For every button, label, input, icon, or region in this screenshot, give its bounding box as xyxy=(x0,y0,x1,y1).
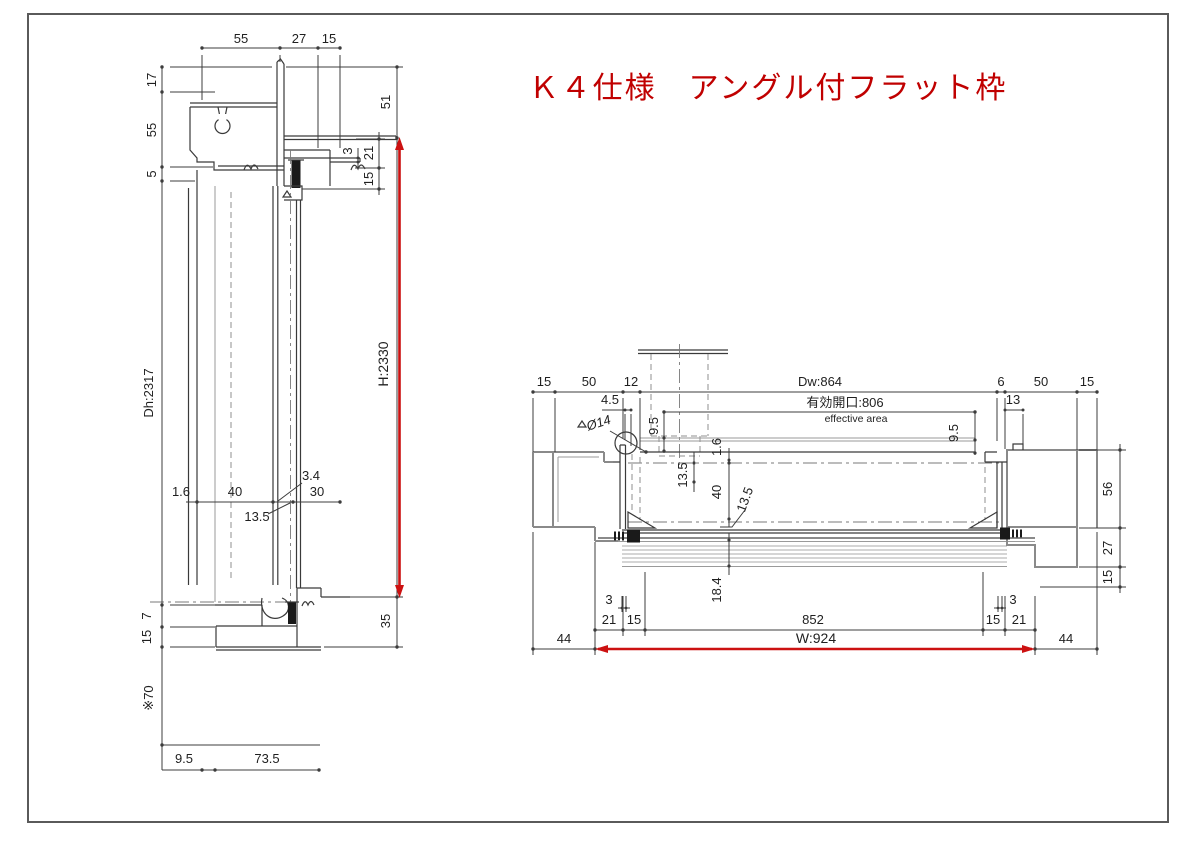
dim-21-bottom-left: 21 xyxy=(602,612,616,627)
clip-icon xyxy=(215,119,230,134)
right-jamb-profile xyxy=(970,444,1097,567)
dim-1-6-left: 1.6 xyxy=(172,484,190,499)
left-view-dimensions: 55 27 15 17 55 5 Dh:2317 7 15 ※70 9.5 73… xyxy=(139,31,404,772)
technical-drawing: Ｋ４仕様 アングル付フラット枠 xyxy=(0,0,1200,848)
dim-7: 7 xyxy=(139,612,154,619)
dim-15-top-right: 15 xyxy=(1080,374,1094,389)
dim-13: 13 xyxy=(1006,392,1020,407)
sill-end-wedge xyxy=(628,512,655,528)
dim-dw864: Dw:864 xyxy=(798,374,842,389)
dim-27-top: 27 xyxy=(292,31,306,46)
dim-21-head: 21 xyxy=(361,146,376,160)
dim-27: 27 xyxy=(1100,541,1115,555)
dim-15-top-left: 15 xyxy=(537,374,551,389)
dim-13-5-left: 13.5 xyxy=(244,509,269,524)
dim-12: 12 xyxy=(624,374,638,389)
dim-55-top: 55 xyxy=(234,31,248,46)
dim-dh2317: Dh:2317 xyxy=(141,368,156,417)
dim-opening-jp: 有効開口:806 xyxy=(806,395,883,410)
right-view-horizontal-section: 15 50 12 Dw:864 6 50 15 有効開口:806 effecti… xyxy=(531,344,1126,655)
dim-9-5-bottom: 9.5 xyxy=(175,751,193,766)
dim-70: ※70 xyxy=(141,685,156,710)
dim-51: 51 xyxy=(378,95,393,109)
dim-44-right: 44 xyxy=(1059,631,1073,646)
dim-56: 56 xyxy=(1100,482,1115,496)
dim-15-left-bottom: 15 xyxy=(139,630,154,644)
dim-21-bottom-right: 21 xyxy=(1012,612,1026,627)
dim-15-bottom-right: 15 xyxy=(986,612,1000,627)
arrow-left-icon xyxy=(595,645,608,653)
frame-vertical-lines xyxy=(189,150,301,602)
drawing-sheet: Ｋ４仕様 アングル付フラット枠 xyxy=(0,0,1200,848)
dim-50-top-left: 50 xyxy=(582,374,596,389)
dim-55-left: 55 xyxy=(144,123,159,137)
dim-opening-en: effective area xyxy=(825,413,888,425)
dim-35: 35 xyxy=(378,614,393,628)
drawing-title: Ｋ４仕様 アングル付フラット枠 xyxy=(529,72,1008,105)
dim-3-4: 3.4 xyxy=(302,468,320,483)
dim-6: 6 xyxy=(997,374,1004,389)
dim-h2330: H:2330 xyxy=(375,341,391,386)
dim-852: 852 xyxy=(802,612,824,627)
arrow-right-icon xyxy=(1022,645,1035,653)
dim-40-left: 40 xyxy=(228,484,242,499)
left-jamb-profile xyxy=(533,445,655,543)
dim-w924: W:924 xyxy=(796,630,836,646)
dim-3-bottom-left: 3 xyxy=(605,592,612,607)
dim-15-bottom-left: 15 xyxy=(627,612,641,627)
dim-15-head: 15 xyxy=(361,172,376,186)
dim-9-5-left: 9.5 xyxy=(646,417,661,435)
dim-9-5-right: 9.5 xyxy=(946,424,961,442)
dim-5: 5 xyxy=(144,170,159,177)
dim-3-bottom-right: 3 xyxy=(1009,592,1016,607)
dim-50-top-right: 50 xyxy=(1034,374,1048,389)
dim-3-head: 3 xyxy=(340,147,355,154)
dim-13-5-upper: 13.5 xyxy=(675,462,690,487)
screw-icon xyxy=(292,160,301,188)
door-bottom-seal xyxy=(262,598,289,618)
dim-73-5: 73.5 xyxy=(254,751,279,766)
dim-17: 17 xyxy=(144,73,159,87)
dim-40: 40 xyxy=(709,485,724,499)
dim-44-left: 44 xyxy=(557,631,571,646)
dim-15-top: 15 xyxy=(322,31,336,46)
threshold-band xyxy=(598,530,1035,567)
dim-4-5: 4.5 xyxy=(601,392,619,407)
dim-30: 30 xyxy=(310,484,324,499)
left-view-vertical-section: 55 27 15 17 55 5 Dh:2317 7 15 ※70 9.5 73… xyxy=(139,31,404,772)
sill-profile xyxy=(150,588,350,650)
screw-icon xyxy=(288,602,296,624)
dim-15-right-side: 15 xyxy=(1100,570,1115,584)
dim-13-5-lower: 13.5 xyxy=(733,485,756,514)
dim-18-4: 18.4 xyxy=(709,577,724,602)
dim-dia14: Ø14 xyxy=(584,412,613,434)
dim-1-6: 1.6 xyxy=(709,438,724,456)
sill-end-wedge xyxy=(970,512,997,528)
